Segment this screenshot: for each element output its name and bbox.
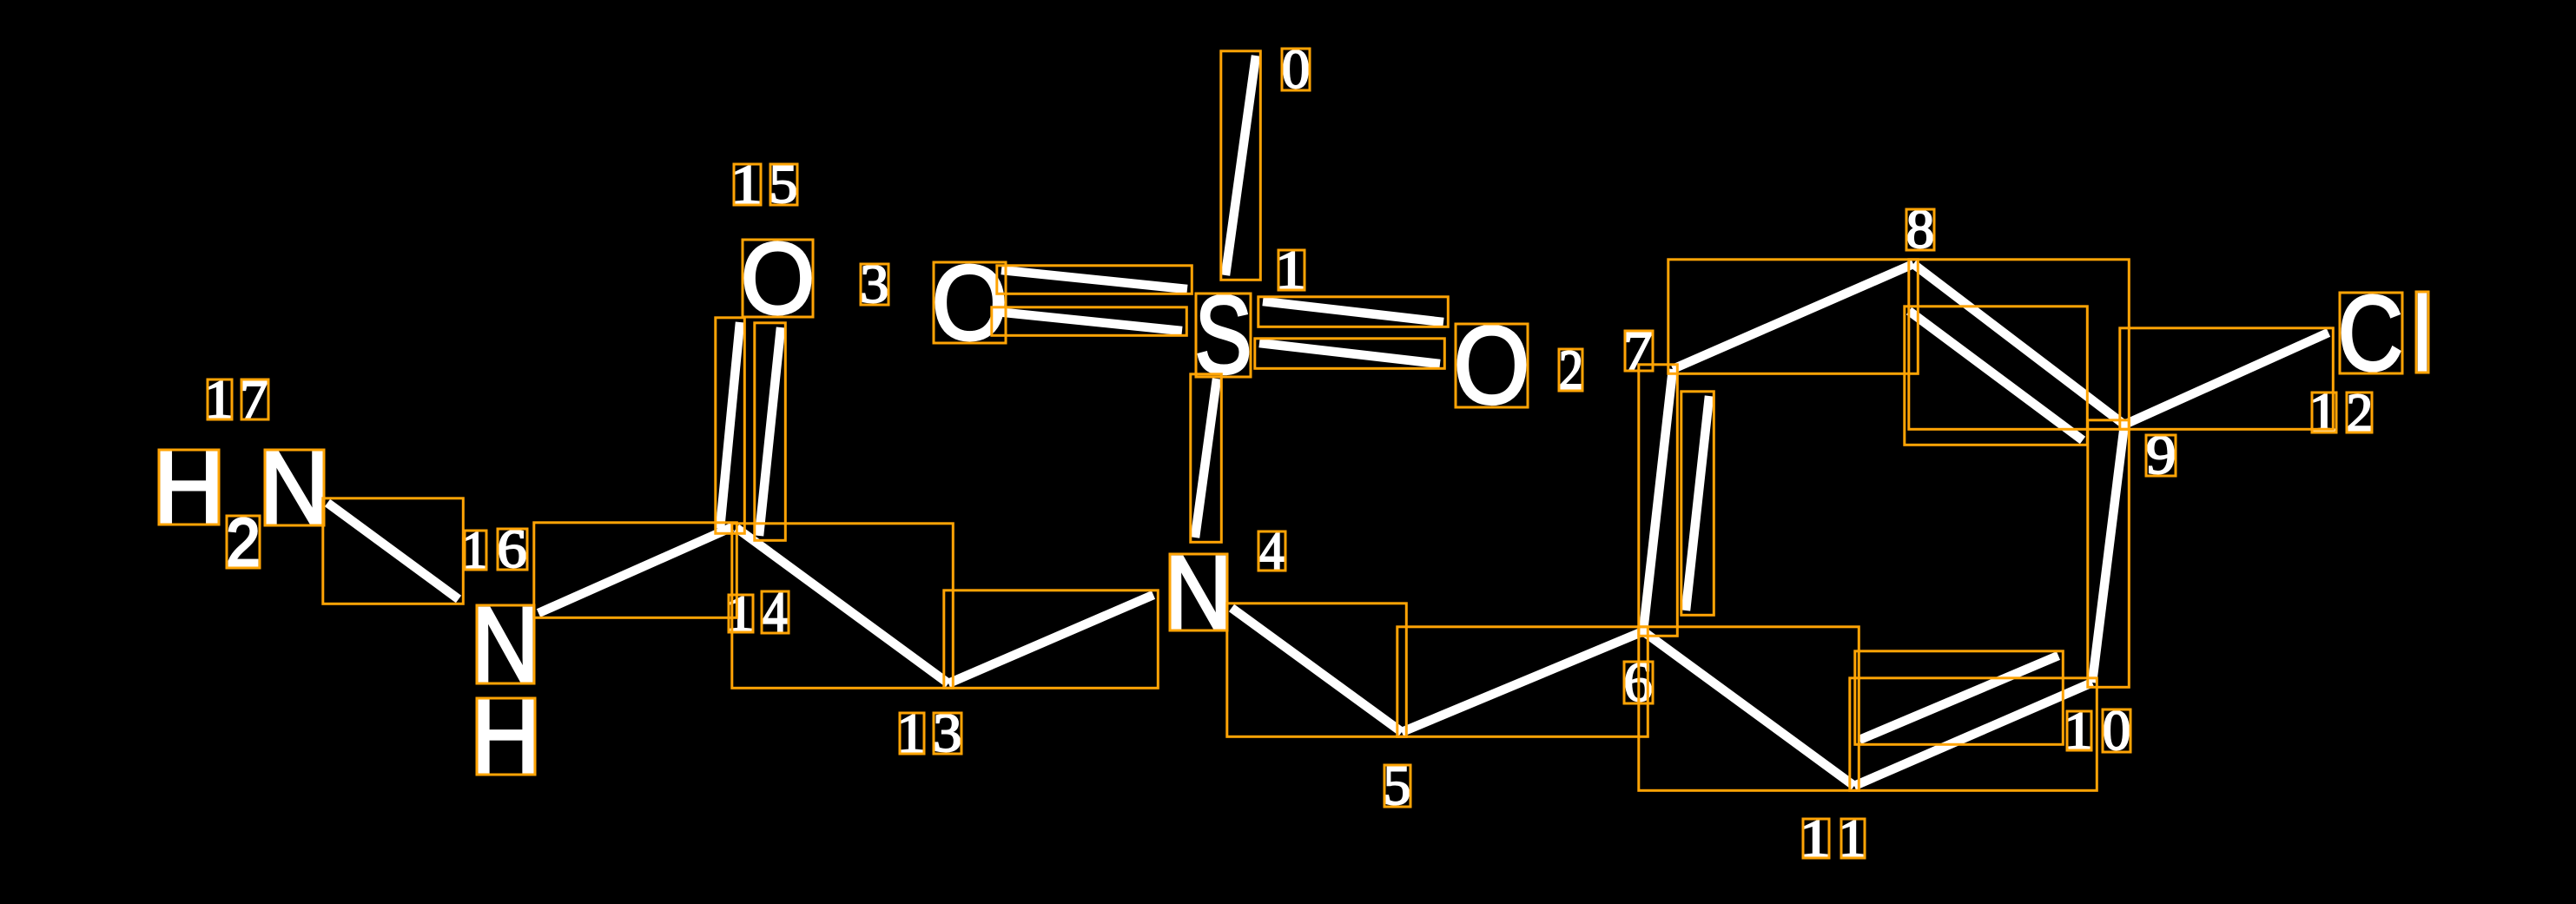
svg-text:N: N xyxy=(1165,535,1232,650)
svg-text:N: N xyxy=(260,431,329,545)
svg-text:H: H xyxy=(472,679,540,795)
svg-text:H: H xyxy=(154,431,225,544)
